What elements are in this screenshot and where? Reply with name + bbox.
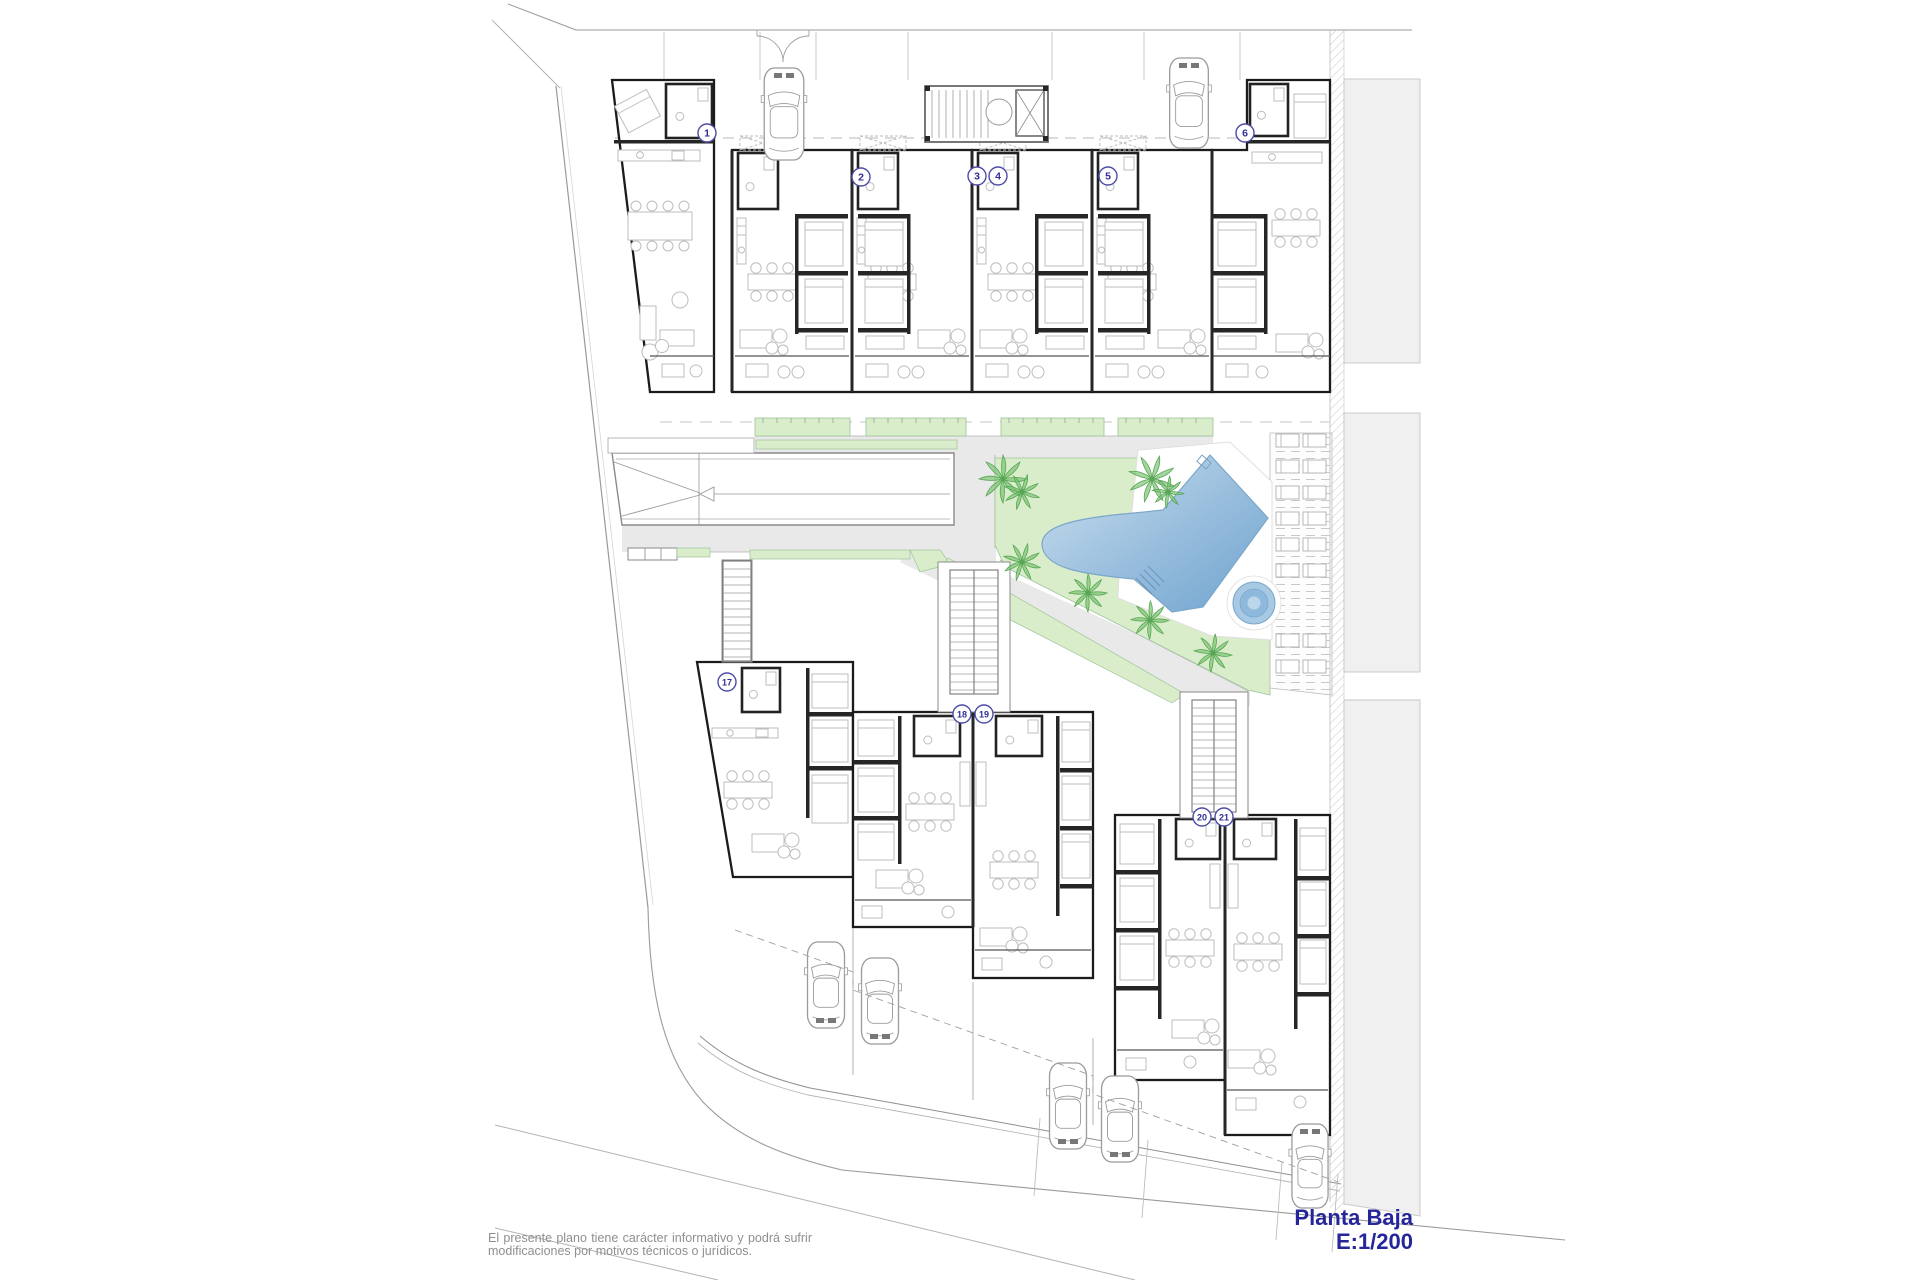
svg-text:18: 18 (957, 710, 967, 720)
svg-text:20: 20 (1197, 813, 1207, 823)
plan-title: Planta Baja E:1/200 (1294, 1206, 1413, 1254)
svg-text:21: 21 (1219, 813, 1229, 823)
car-icon (859, 958, 902, 1044)
svg-text:6: 6 (1242, 128, 1248, 140)
disclaimer-note: El presente plano tiene carácter informa… (488, 1232, 812, 1258)
site-plan-drawing: 1234561718192021 (0, 0, 1920, 1280)
unit-badge-20: 20 (1193, 808, 1211, 826)
car-icon (805, 942, 848, 1028)
car-icon (1047, 1063, 1090, 1149)
sunbathing-terrace (1270, 433, 1332, 695)
neighbor-plots (1330, 30, 1420, 1216)
svg-text:2: 2 (858, 172, 864, 184)
unit-badge-1: 1 (698, 124, 716, 142)
unit-badge-5: 5 (1099, 167, 1117, 185)
jacuzzi (1227, 576, 1281, 630)
svg-text:17: 17 (722, 678, 732, 688)
palm-tree-icon (1131, 601, 1169, 639)
plan-name: Planta Baja (1294, 1205, 1413, 1230)
svg-text:4: 4 (995, 171, 1001, 183)
unit-badge-19: 19 (975, 705, 993, 723)
boundary-hatch-strip (1330, 30, 1344, 1210)
entrance-gate-icon (757, 30, 809, 62)
svg-text:5: 5 (1105, 171, 1111, 183)
unit-badge-2: 2 (852, 168, 870, 186)
unit-badge-17: 17 (718, 673, 736, 691)
svg-text:19: 19 (979, 710, 989, 720)
car-icon (761, 68, 807, 160)
floor-plan-page: 1234561718192021 Planta Baja E:1/200 El … (0, 0, 1920, 1280)
plan-scale: E:1/200 (1294, 1230, 1413, 1254)
car-icon (1289, 1124, 1331, 1208)
car-icon (1099, 1076, 1142, 1162)
car-icon (1167, 58, 1212, 148)
svg-text:1: 1 (704, 128, 710, 140)
palm-tree-icon (1069, 574, 1107, 612)
svg-text:3: 3 (974, 171, 980, 183)
unit-badge-21: 21 (1215, 808, 1233, 826)
unit-badge-4: 4 (989, 167, 1007, 185)
unit-badge-3: 3 (968, 167, 986, 185)
unit-badge-18: 18 (953, 705, 971, 723)
unit-badge-6: 6 (1236, 124, 1254, 142)
